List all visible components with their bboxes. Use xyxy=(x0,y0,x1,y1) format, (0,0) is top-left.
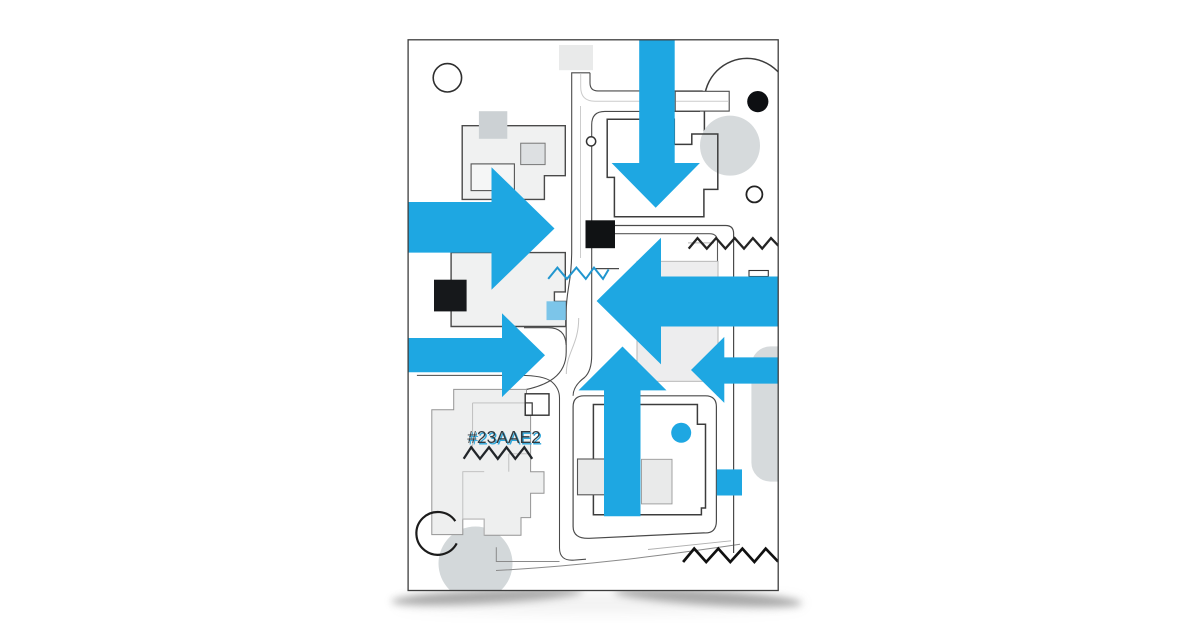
svg-text:#23AAE2: #23AAE2 xyxy=(467,427,541,447)
